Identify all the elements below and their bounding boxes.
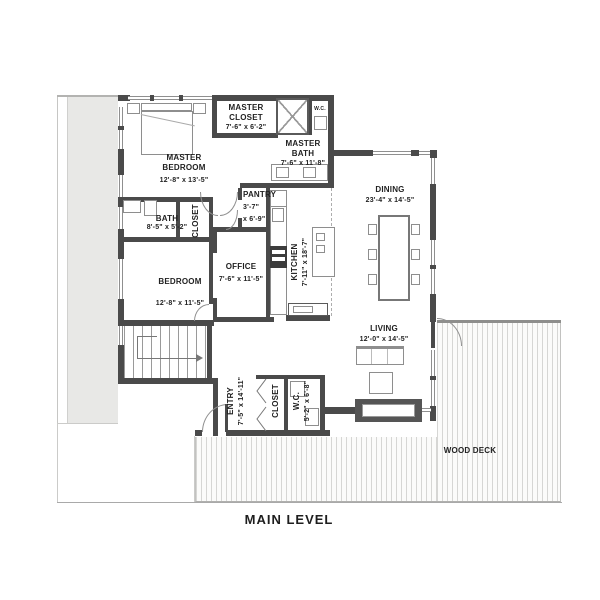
- nightstand: [193, 103, 206, 114]
- room-label-wood-deck: WOOD DECK: [425, 446, 515, 456]
- window-mullion: [150, 95, 154, 101]
- window: [119, 259, 123, 299]
- coffee-table: [369, 372, 393, 394]
- dining-chair: [411, 249, 420, 260]
- room-name: W.C.: [314, 106, 326, 112]
- headboard: [141, 103, 192, 111]
- room-label-kitchen: KITCHEN 7'-11" x 18'-7": [290, 214, 316, 310]
- room-name: BEDROOM: [135, 277, 225, 287]
- room-name: ENTRY: [226, 366, 236, 436]
- wall-pantry-left: [238, 188, 242, 200]
- site-bottom-line: [57, 502, 562, 503]
- wall-segment: [411, 150, 419, 156]
- sofa-cushion-line: [387, 349, 388, 364]
- window-mullion: [430, 265, 436, 269]
- room-label-wc: W.C. 5'-2" x 6'-8": [292, 372, 316, 430]
- wall-mwc-div: [309, 98, 312, 135]
- wall-segment: [430, 294, 436, 322]
- room-dims: x 6'-9": [243, 216, 283, 224]
- window: [119, 323, 123, 345]
- driveway-edge: [67, 97, 68, 423]
- stairs-arrow-line: [137, 336, 138, 359]
- room-name: WOOD DECK: [425, 446, 515, 456]
- room-dims: 3'-7": [243, 204, 283, 212]
- room-label-dining: DINING 23'-4" x 14'-5": [352, 185, 428, 205]
- wall-mcloset-bottom: [212, 133, 278, 138]
- room-label-living: LIVING 12'-0" x 14'-5": [348, 324, 420, 344]
- sofa: [356, 346, 404, 365]
- room-name: MASTER BATH: [274, 139, 332, 158]
- wall-segment: [118, 149, 124, 175]
- deck-right: [437, 323, 561, 502]
- stove-detail: [272, 257, 285, 261]
- island-sink: [316, 245, 325, 253]
- room-label-entry: ENTRY 7'-5" x 14'-11": [226, 366, 250, 436]
- wall-closet-wc-div: [284, 375, 288, 436]
- stairs-arrow-line: [137, 336, 157, 337]
- room-name: MASTER BEDROOM: [155, 153, 213, 172]
- wall-mbath-bottom: [240, 183, 334, 188]
- window: [119, 175, 123, 199]
- dining-chair: [368, 249, 377, 260]
- room-dims: 5'-2" x 6'-8": [304, 372, 312, 430]
- room-label-master-closet2: CLOSET: [191, 193, 203, 249]
- dining-table: [378, 215, 410, 301]
- wall-segment: [195, 430, 202, 436]
- stairs-arrow-line: [137, 358, 197, 359]
- wall-segment: [118, 229, 124, 259]
- deck-top-edge: [437, 320, 561, 323]
- window: [373, 151, 411, 155]
- room-name: PANTRY: [243, 190, 283, 200]
- wall-wc-right: [320, 375, 325, 436]
- room-name: LIVING: [348, 324, 420, 334]
- shower: [276, 98, 309, 135]
- room-label-master-closet: MASTER CLOSET 7'-6" x 6'-2": [212, 103, 280, 133]
- room-label-master-wc: W.C.: [309, 106, 331, 112]
- wall-segment: [430, 150, 437, 158]
- window-mullion: [430, 376, 436, 380]
- wall-office-bottom: [213, 317, 274, 322]
- room-dims: 12'-8" x 11'-5": [135, 300, 225, 308]
- room-dims: 7'-5" x 14'-11": [238, 366, 246, 436]
- sink: [303, 167, 316, 178]
- room-name: CLOSET: [271, 371, 281, 431]
- window-mullion: [179, 95, 183, 101]
- room-dims: 12'-0" x 14'-5": [348, 336, 420, 344]
- dining-chair: [368, 224, 377, 235]
- window: [431, 158, 435, 184]
- deck-bottom: [195, 437, 437, 502]
- toilet: [314, 116, 327, 130]
- room-name: OFFICE: [210, 262, 272, 272]
- dining-chair: [368, 274, 377, 285]
- room-dims: 12'-8" x 13'-5": [138, 177, 230, 185]
- room-label-pantry: PANTRY 3'-7" x 6'-9": [243, 190, 283, 224]
- wall-segment: [430, 184, 436, 240]
- room-dims: 23'-4" x 14'-5": [352, 197, 428, 205]
- room-name: MASTER CLOSET: [217, 103, 275, 122]
- room-label-entry-closet: CLOSET: [271, 371, 283, 431]
- room-dims: 7'-11" x 18'-7": [302, 214, 310, 310]
- wall-segment: [333, 150, 373, 156]
- deck-door-leaf: [431, 320, 435, 348]
- plan-title: MAIN LEVEL: [204, 512, 374, 527]
- room-label-bedroom: BEDROOM 12'-8" x 11'-5": [135, 277, 225, 308]
- nightstand: [127, 103, 140, 114]
- room-name: W.C.: [292, 372, 302, 430]
- wall-stairs-bottom: [118, 378, 218, 384]
- fireplace-inner: [362, 404, 415, 417]
- bath-vanity: [123, 200, 141, 213]
- wall-office-left: [213, 227, 217, 253]
- room-name: DINING: [352, 185, 428, 195]
- sink: [276, 167, 289, 178]
- sofa-cushion-line: [371, 349, 372, 364]
- window: [128, 96, 214, 100]
- room-name: CLOSET: [191, 193, 201, 249]
- room-label-master-bath: MASTER BATH 7'-6" x 11'-8": [272, 139, 334, 169]
- wall-fireplace-stub: [325, 407, 358, 414]
- stairs-arrowhead: [196, 354, 203, 362]
- floor-plan: MASTER CLOSET 7'-6" x 6'-2" W.C. MASTER …: [0, 0, 600, 600]
- dining-chair: [411, 224, 420, 235]
- window-mullion: [118, 126, 124, 130]
- driveway: [68, 97, 118, 423]
- room-dims: 7'-6" x 11'-8": [272, 160, 334, 168]
- bed: [141, 111, 193, 155]
- dining-chair: [411, 274, 420, 285]
- stove-detail: [272, 250, 285, 254]
- room-dims: 7'-6" x 6'-2": [212, 124, 280, 132]
- room-label-master-bedroom: MASTER BEDROOM 12'-8" x 13'-5": [138, 153, 230, 186]
- bifold-door-icon: [255, 379, 267, 431]
- island-sink: [316, 233, 325, 241]
- wall-segment: [212, 95, 334, 101]
- room-name: KITCHEN: [290, 214, 300, 310]
